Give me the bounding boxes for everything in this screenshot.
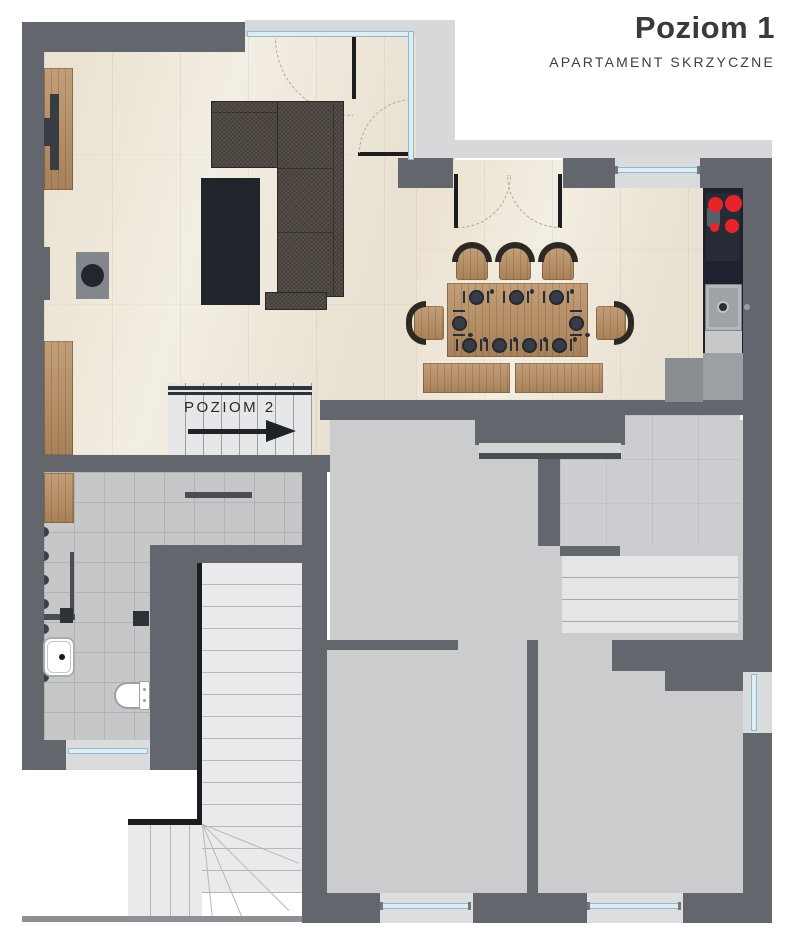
burner [725, 195, 742, 212]
window-recess-bedroom2-side [743, 672, 772, 733]
bedroom-1-floor [327, 650, 527, 893]
knife-icon [540, 339, 542, 351]
window-bedroom1 [382, 903, 471, 909]
wall-bedroom-divider [527, 640, 538, 893]
toilet-button [143, 688, 146, 691]
toilet-tank [139, 681, 150, 710]
bath-door-block [133, 611, 149, 626]
plate-icon [569, 316, 584, 331]
knife-icon [453, 334, 465, 336]
wall-bottom-thin [22, 916, 302, 922]
bath-door-block [60, 608, 73, 623]
plate-icon [549, 290, 564, 305]
window-cap [468, 902, 471, 910]
knife-icon [567, 291, 569, 303]
plate-icon [492, 338, 507, 353]
fork-icon [516, 339, 518, 351]
closet-shelves [562, 556, 738, 633]
window-terrace-top [247, 31, 414, 37]
knife-icon [527, 291, 529, 303]
plate-icon [509, 290, 524, 305]
wall-main-bottom-a [320, 400, 475, 420]
fork-icon [570, 310, 582, 312]
stair-wall-vertical [197, 563, 202, 824]
knife-icon [570, 334, 582, 336]
stairs-up-rail-line [168, 390, 312, 392]
knife-icon [570, 339, 572, 351]
plate-icon [462, 338, 477, 353]
kitchen-appliance [665, 358, 703, 402]
wall-pier-fireplace [22, 247, 50, 300]
burner [708, 197, 723, 212]
sofa-seam [278, 232, 333, 233]
toilet-bowl [114, 682, 142, 709]
stairs-down-winder [128, 825, 202, 916]
spoon-icon [570, 289, 574, 294]
sofa-seam [333, 102, 334, 296]
wall-right [743, 158, 772, 923]
direction-arrow-shaft [188, 429, 268, 434]
wall-closet-l-vertical [538, 415, 560, 546]
terrace-strip-kitchen [455, 140, 772, 158]
window-cap [697, 166, 700, 174]
knife-icon [487, 291, 489, 303]
closet-niche [479, 443, 621, 453]
fork-icon [456, 339, 458, 351]
wall-closet-l-horizontal [560, 546, 620, 556]
spoon-icon [573, 337, 577, 342]
wall-left [22, 22, 44, 740]
spoon-icon [490, 289, 494, 294]
plate-icon [552, 338, 567, 353]
wall-main-bottom-b [625, 400, 743, 415]
page-title: Poziom 1 [549, 10, 775, 46]
page-subtitle: APARTAMENT SKRZYCZNE [549, 54, 775, 70]
window-cap [678, 902, 681, 910]
plan-header: Poziom 1 APARTAMENT SKRZYCZNE [549, 10, 775, 70]
floor-plan-canvas: POZIOM 2 Poziom 1 APARTAMENT SKRZYCZNE [0, 0, 800, 949]
spoon-icon [468, 333, 473, 337]
fork-icon [463, 291, 465, 303]
wall-bath-stair [150, 545, 197, 740]
dining-bench [423, 363, 510, 393]
knife-icon [510, 339, 512, 351]
window-cap [380, 902, 383, 910]
wall-bedrooms-top-a [320, 640, 458, 650]
sofa-seam [211, 112, 277, 113]
burner [710, 223, 719, 232]
terrace-strip-corner [412, 20, 455, 160]
fork-icon [546, 339, 548, 351]
plate-icon [522, 338, 537, 353]
fork-icon [503, 291, 505, 303]
wall-living-bottom [22, 455, 330, 472]
sofa-seam [278, 168, 333, 169]
window-recess-kitchen [615, 158, 700, 188]
spoon-icon [585, 333, 590, 337]
window-recess-bathroom [66, 740, 150, 770]
window-kitchen [617, 167, 698, 173]
sideboard [44, 341, 73, 455]
wall-stairwell-left [302, 472, 327, 893]
coat-rail-hall [479, 453, 621, 459]
fireplace-flue [81, 264, 104, 287]
window-bedroom2-side [751, 674, 757, 731]
sofa-armrest [265, 292, 327, 310]
fork-icon [486, 339, 488, 351]
stairs-up-label: POZIOM 2 [184, 399, 304, 416]
winder-tread [189, 825, 190, 916]
direction-arrow-head [266, 420, 296, 442]
burner [725, 219, 739, 233]
wall-stair-top [197, 545, 302, 563]
wall-kitchen-top-b [563, 158, 615, 188]
coffee-table [201, 178, 260, 305]
wall-knob [744, 304, 750, 310]
plate-icon [469, 290, 484, 305]
winder-tread [150, 825, 151, 916]
wall-bedroom2-corner [665, 650, 743, 691]
drain-icon [59, 654, 65, 660]
dining-bench [515, 363, 603, 393]
window-cap [615, 166, 618, 174]
winder-tread [170, 825, 171, 916]
fork-icon [453, 310, 465, 312]
wall-top [22, 22, 245, 52]
tv-bracket [44, 118, 52, 146]
toilet-button [143, 699, 146, 702]
wall-kitchen-top-a [398, 158, 453, 188]
fork-icon [543, 291, 545, 303]
stair-wall-horizontal [128, 819, 202, 825]
faucet-icon [719, 303, 727, 311]
knife-icon [480, 339, 482, 351]
kitchen-appliance [703, 353, 743, 400]
window-bathroom [68, 748, 148, 754]
window-bedroom2 [589, 903, 681, 909]
coat-rail-entry [185, 492, 252, 498]
window-cap [587, 902, 590, 910]
wardrobe [44, 473, 74, 523]
plate-icon [452, 316, 467, 331]
counter-lower [705, 331, 742, 353]
window-terrace-side [408, 31, 414, 160]
spoon-icon [530, 289, 534, 294]
